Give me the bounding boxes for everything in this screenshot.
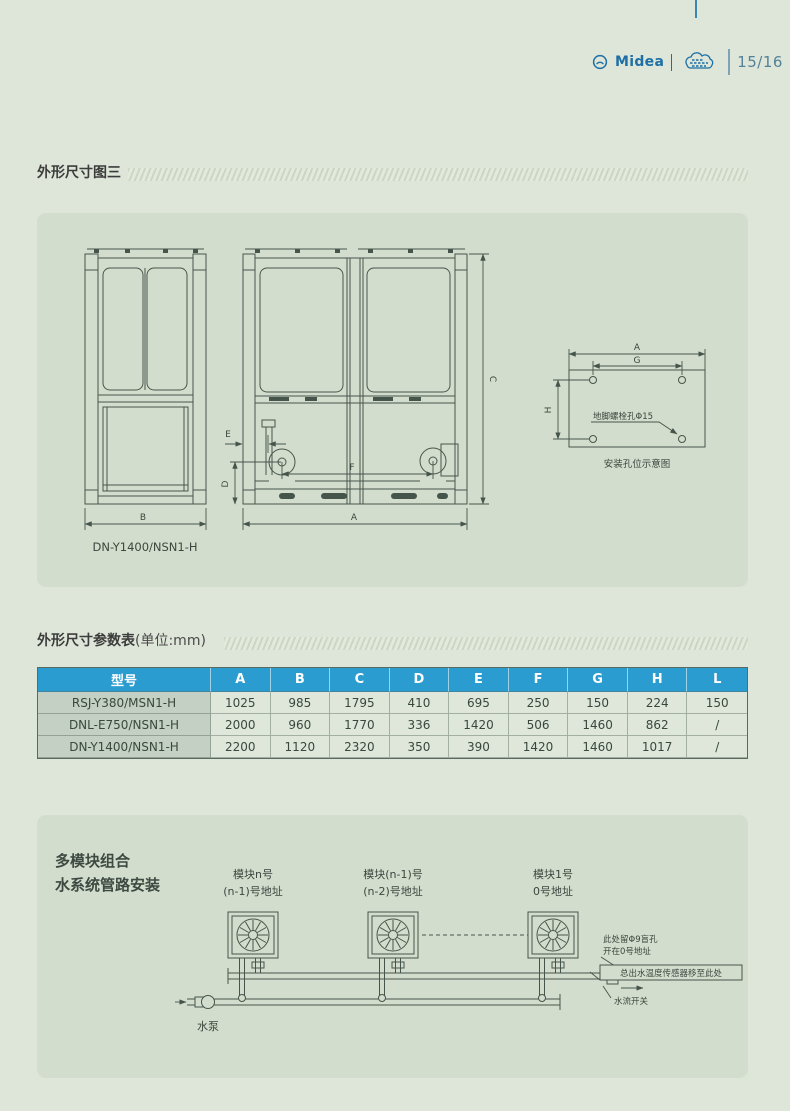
dimension-figure-panel: B DN-Y1400/NSN1-H <box>37 213 748 587</box>
hole-dim-g: G <box>634 356 641 366</box>
top-edge-tick <box>695 0 697 18</box>
midea-circle-icon <box>592 54 608 70</box>
mounting-hole-diagram: A G H 地脚螺栓孔Φ15 安装孔位示意图 <box>544 343 705 470</box>
table-cell: 390 <box>449 736 509 758</box>
table-cell: 506 <box>509 714 569 736</box>
pump-icon <box>202 996 215 1009</box>
piping-diagram: 模块n号 (n-1)号地址 模块(n-1)号 (n-2)号地址 模块1号 0号地… <box>37 815 748 1078</box>
table-cell: 1025 <box>211 692 271 714</box>
dim-label-d: D <box>221 480 231 487</box>
dim-label-b: B <box>140 513 146 523</box>
module-n1-name: 模块(n-1)号 <box>363 868 423 881</box>
table-cell: 150 <box>568 692 628 714</box>
dimension-drawing: B DN-Y1400/NSN1-H <box>37 213 748 587</box>
module-unit <box>528 912 578 958</box>
table-cell: 1460 <box>568 736 628 758</box>
table-cell: 336 <box>390 714 450 736</box>
table-cell: 1770 <box>330 714 390 736</box>
col-header-l: L <box>687 668 747 692</box>
fan-icon <box>377 919 409 951</box>
section-title-rule <box>224 637 748 650</box>
table-cell: 410 <box>390 692 450 714</box>
piping-panel: 多模块组合 水系统管路安装 模块n号 (n-1)号地址 模块(n-1)号 (n-… <box>37 815 748 1078</box>
module-unit <box>368 912 418 958</box>
page-header: Midea 15/16 <box>592 49 783 75</box>
section-title-dim-table: 外形尺寸参数表(单位:mm) <box>37 630 206 650</box>
section-title-dim-figure: 外形尺寸图三 <box>37 162 121 182</box>
blind-hole-note-line2: 开在0号地址 <box>603 946 651 957</box>
col-header-c: C <box>330 668 390 692</box>
hole-dim-a: A <box>634 343 641 353</box>
module-n-address: (n-1)号地址 <box>223 884 283 898</box>
front-view: C A E D F <box>221 249 497 530</box>
fan-icon <box>537 919 569 951</box>
anchor-bolt-note: 地脚螺栓孔Φ15 <box>593 411 653 422</box>
table-cell: 862 <box>628 714 688 736</box>
table-cell: 1120 <box>271 736 331 758</box>
table-cell: 2000 <box>211 714 271 736</box>
table-cell: 2200 <box>211 736 271 758</box>
hole-diagram-caption: 安装孔位示意图 <box>604 458 671 470</box>
table-cell: 960 <box>271 714 331 736</box>
table-row-model: DNL-E750/NSN1-H <box>38 714 211 736</box>
side-view: B DN-Y1400/NSN1-H <box>85 249 206 554</box>
dim-label-c: C <box>487 376 497 382</box>
table-cell: / <box>687 736 747 758</box>
hole-dim-h: H <box>544 407 554 414</box>
header-rule <box>728 49 730 75</box>
table-cell: 250 <box>509 692 569 714</box>
col-header-g: G <box>568 668 628 692</box>
table-cell: 1460 <box>568 714 628 736</box>
table-cell: 985 <box>271 692 331 714</box>
pump-label: 水泵 <box>197 1020 219 1033</box>
col-header-a: A <box>211 668 271 692</box>
table-cell: 350 <box>390 736 450 758</box>
section-title-rule <box>128 168 748 181</box>
module-n1-address: (n-2)号地址 <box>363 884 423 898</box>
dim-table-unit: (单位:mm) <box>135 633 206 649</box>
manual-page: Midea 15/16 外形尺寸图三 <box>0 0 790 1111</box>
table-cell: 2320 <box>330 736 390 758</box>
table-cell: 1420 <box>449 714 509 736</box>
col-header-b: B <box>271 668 331 692</box>
module-1-address: 0号地址 <box>533 884 573 898</box>
table-cell: 1017 <box>628 736 688 758</box>
dim-label-a: A <box>351 513 358 523</box>
cac-cloud-logo-icon <box>679 52 721 72</box>
module-1-name: 模块1号 <box>533 868 573 881</box>
fan-icon <box>237 919 269 951</box>
table-cell: 1420 <box>509 736 569 758</box>
table-cell: / <box>687 714 747 736</box>
sensor-note: 总出水温度传感器移至此处 <box>620 968 723 979</box>
module-unit <box>228 912 278 958</box>
model-label: DN-Y1400/NSN1-H <box>92 540 197 554</box>
flow-switch-label: 水流开关 <box>614 996 649 1007</box>
dim-label-f: F <box>349 463 354 473</box>
brand-wordmark: Midea <box>615 54 664 70</box>
col-header-f: F <box>509 668 569 692</box>
table-cell: 150 <box>687 692 747 714</box>
col-header-e: E <box>449 668 509 692</box>
inlet-pipe <box>214 994 560 1010</box>
table-row-model: RSJ-Y380/MSN1-H <box>38 692 211 714</box>
module-n-name: 模块n号 <box>233 868 273 881</box>
col-header-h: H <box>628 668 688 692</box>
brand-divider <box>671 54 672 71</box>
outlet-pipe <box>228 968 650 984</box>
dimension-table: 型号 A B C D E F G H L RSJ-Y380/MSN1-H 102… <box>37 667 748 759</box>
table-cell: 695 <box>449 692 509 714</box>
dim-table-title: 外形尺寸参数表 <box>37 633 135 649</box>
blind-hole-note-line1: 此处留Φ9盲孔 <box>603 934 658 945</box>
page-number: 15/16 <box>737 53 783 71</box>
col-header-model: 型号 <box>38 668 211 692</box>
table-cell: 1795 <box>330 692 390 714</box>
dim-label-e: E <box>225 430 231 440</box>
table-cell: 224 <box>628 692 688 714</box>
table-row-model: DN-Y1400/NSN1-H <box>38 736 211 758</box>
col-header-d: D <box>390 668 450 692</box>
